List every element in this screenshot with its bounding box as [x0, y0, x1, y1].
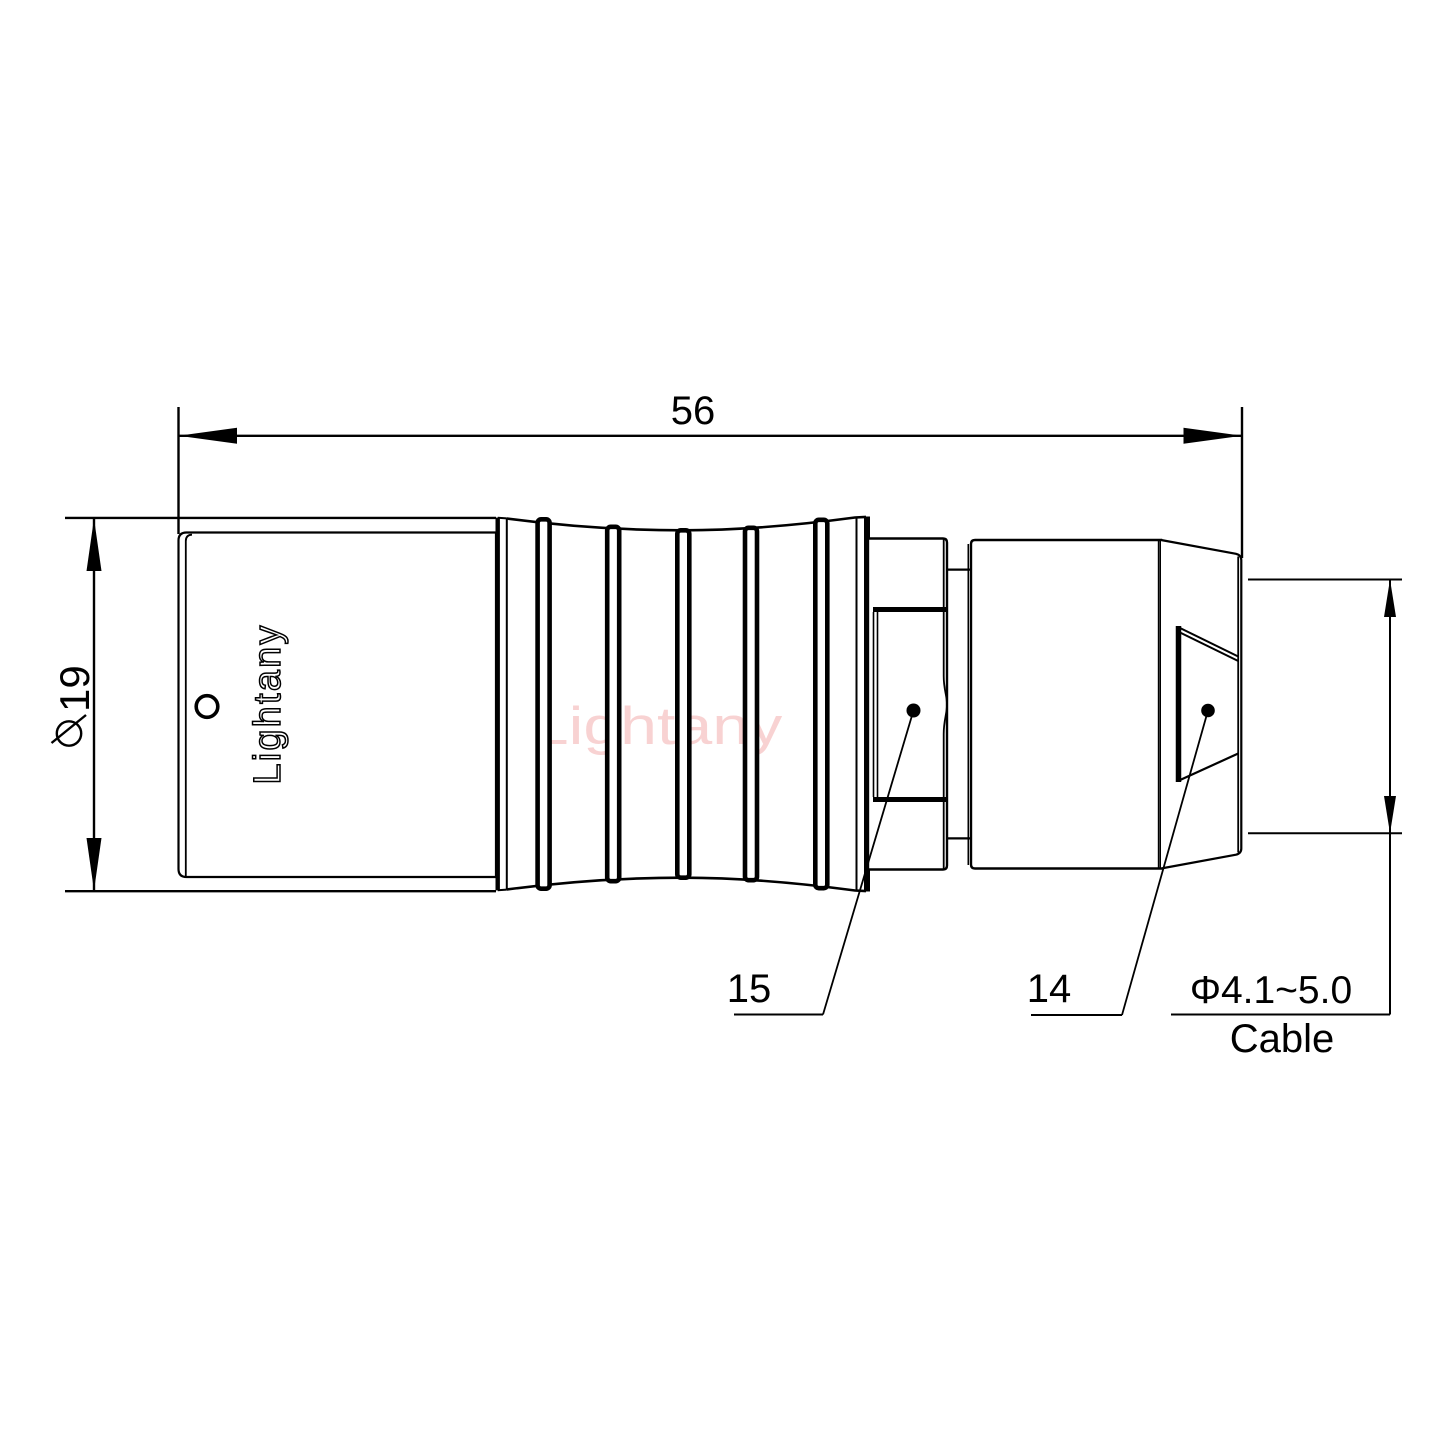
svg-text:19: 19: [51, 665, 98, 712]
svg-text:15: 15: [727, 967, 772, 1011]
svg-text:Φ4.1~5.0: Φ4.1~5.0: [1190, 969, 1352, 1012]
svg-text:56: 56: [671, 389, 716, 433]
svg-text:Cable: Cable: [1230, 1017, 1335, 1061]
svg-text:14: 14: [1027, 967, 1072, 1011]
svg-text:Lightany: Lightany: [247, 623, 289, 784]
